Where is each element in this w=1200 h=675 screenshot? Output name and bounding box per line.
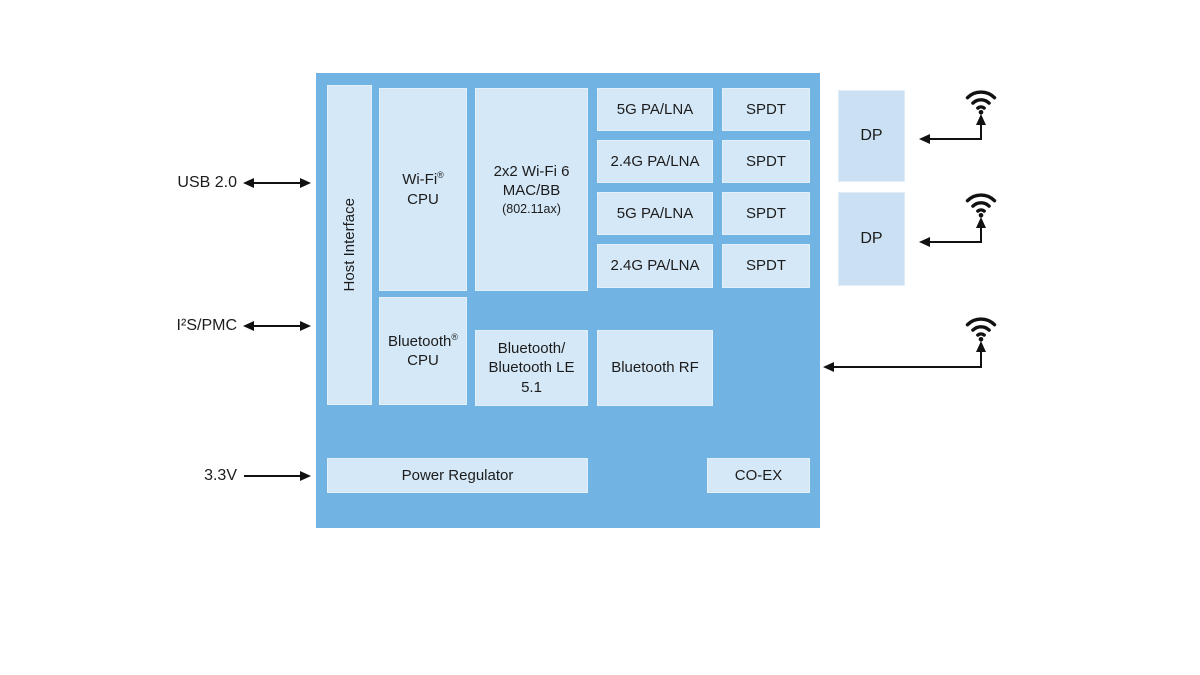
dp1-antenna-arrow — [919, 114, 986, 144]
wifi-cpu-block: Wi-Fi® CPU — [379, 88, 467, 291]
coex-block: CO-EX — [707, 458, 810, 493]
bluetooth-cpu-sublabel: CPU — [407, 351, 439, 371]
wifi-antenna-icon — [968, 195, 995, 218]
wifi-mac-line3: (802.11ax) — [502, 201, 561, 217]
port-label-i2s-pmc: I²S/PMC — [97, 315, 237, 337]
bluetooth-le-line3: 5.1 — [521, 378, 542, 398]
dp2-antenna-arrow — [919, 217, 986, 247]
power-input-arrow — [244, 471, 311, 481]
dp-block-2: DP — [838, 192, 905, 286]
wifi-mac-line2: MAC/BB — [503, 181, 561, 201]
dp-block-1: DP — [838, 90, 905, 182]
i2s-pmc-arrow — [243, 321, 311, 331]
host-interface-label: Host Interface — [340, 198, 360, 291]
usb-arrow — [243, 178, 311, 188]
spdt-block-4: SPDT — [722, 244, 810, 288]
bluetooth-le-line2: Bluetooth LE — [489, 358, 575, 378]
port-label-usb: USB 2.0 — [97, 172, 237, 194]
port-label-3v3: 3.3V — [97, 465, 237, 487]
pa-lna-block-2: 2.4G PA/LNA — [597, 140, 713, 183]
spdt-block-2: SPDT — [722, 140, 810, 183]
wifi-cpu-sublabel: CPU — [407, 190, 439, 210]
bluetooth-le-block: Bluetooth/ Bluetooth LE 5.1 — [475, 330, 588, 406]
bluetooth-le-line1: Bluetooth/ — [498, 339, 566, 359]
chip-block: Host Interface Wi-Fi® CPU 2x2 Wi-Fi 6 MA… — [316, 73, 820, 528]
wifi-mac-line1: 2x2 Wi-Fi 6 — [494, 162, 570, 182]
spdt-block-1: SPDT — [722, 88, 810, 131]
host-interface-block: Host Interface — [327, 85, 372, 405]
pa-lna-block-4: 2.4G PA/LNA — [597, 244, 713, 288]
wifi-antenna-icon — [968, 319, 995, 342]
wifi-antenna-icon — [968, 92, 995, 115]
spdt-block-3: SPDT — [722, 192, 810, 235]
pa-lna-block-3: 5G PA/LNA — [597, 192, 713, 235]
bluetooth-rf-block: Bluetooth RF — [597, 330, 713, 406]
wifi-cpu-label: Wi-Fi® — [402, 170, 444, 190]
pa-lna-block-1: 5G PA/LNA — [597, 88, 713, 131]
bluetooth-cpu-block: Bluetooth® CPU — [379, 297, 467, 405]
power-regulator-block: Power Regulator — [327, 458, 588, 493]
bluetooth-cpu-label: Bluetooth® — [388, 332, 458, 352]
wifi-mac-bb-block: 2x2 Wi-Fi 6 MAC/BB (802.11ax) — [475, 88, 588, 291]
block-diagram: USB 2.0 I²S/PMC 3.3V Host Interface Wi-F… — [0, 0, 1200, 675]
chip-antenna-arrow — [823, 341, 986, 372]
